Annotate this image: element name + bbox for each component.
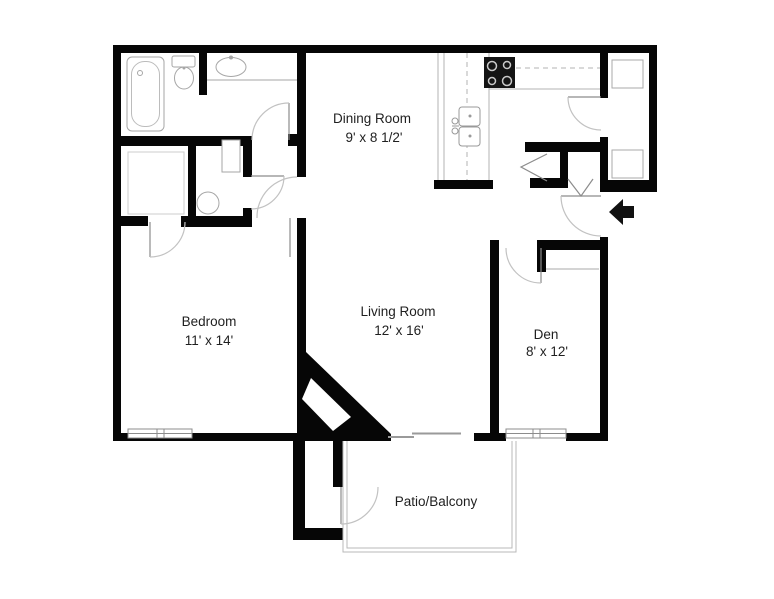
wall-utility-left-lower — [600, 137, 608, 183]
wall-left — [113, 45, 121, 441]
wall-right-upper — [649, 45, 657, 185]
wall-storage-bottom — [293, 528, 343, 540]
room-dims-living: 12' x 16' — [374, 323, 423, 338]
bathtub-icon — [127, 57, 164, 131]
wall-bath-dining — [297, 53, 306, 177]
wall-hallcloset-bottom — [530, 178, 567, 188]
room-label-dining: Dining Room — [333, 111, 411, 126]
floor-plan-page: Dining Room 9' x 8 1/2' Bedroom 11' x 14… — [0, 0, 774, 599]
vanity-sink-icon — [207, 56, 297, 81]
hall-bath-vanity-icon — [222, 140, 240, 172]
entry-door — [561, 196, 601, 236]
wall-bedroom-top-right — [181, 216, 252, 227]
wall-kitchen-cap — [434, 180, 493, 189]
wall-hallbath-left — [188, 143, 196, 218]
bedroom-closet-outline — [128, 152, 184, 214]
wall-bedroom-top-left — [121, 216, 148, 226]
wall-bedroom-living — [297, 218, 306, 354]
wall-hallbath-right-upper — [243, 143, 252, 177]
room-dims-den: 8' x 12' — [526, 344, 568, 359]
bifold-door-icon — [521, 154, 547, 181]
kitchen-double-sink-icon — [452, 107, 480, 146]
bedroom-window — [128, 429, 192, 438]
washer-dryer-shelves-icon — [612, 60, 643, 178]
utility-door — [568, 97, 601, 130]
wall-den-top — [537, 240, 608, 250]
wall-storage-left — [293, 441, 305, 540]
wall-bath-divider-stub — [199, 53, 207, 95]
bedroom-door — [257, 177, 297, 257]
hall-bath-toilet-icon — [197, 192, 219, 214]
den-window — [506, 429, 566, 438]
wall-utility-bottom — [600, 180, 657, 192]
stove-cooktop-icon — [484, 57, 515, 88]
toilet-icon — [172, 56, 195, 89]
wall-den-bottom — [566, 433, 608, 441]
wall-utility-left-upper — [600, 53, 608, 98]
wall-top — [113, 45, 657, 53]
room-label-den: Den — [534, 327, 559, 342]
kitchen — [438, 53, 600, 180]
den-door — [506, 248, 541, 283]
room-label-living: Living Room — [360, 304, 435, 319]
entry-arrow-icon — [609, 199, 634, 225]
wall-hallcloset-top — [525, 142, 600, 152]
wall-bath-se-stub — [288, 134, 306, 146]
wall-right-den — [600, 237, 608, 441]
sliding-glass-door — [388, 434, 461, 438]
room-label-patio: Patio/Balcony — [395, 494, 478, 509]
room-label-bedroom: Bedroom — [182, 314, 237, 329]
bathroom-fixtures — [127, 56, 297, 215]
bifold-door-icon — [568, 179, 593, 196]
fireplace — [297, 352, 391, 441]
room-dims-dining: 9' x 8 1/2' — [346, 130, 403, 145]
wall-den-left — [490, 240, 499, 433]
floor-plan: Dining Room 9' x 8 1/2' Bedroom 11' x 14… — [0, 0, 774, 599]
wall-living-bottom-stub — [474, 433, 506, 441]
wall-storage-right — [333, 441, 343, 487]
room-dims-bedroom: 11' x 14' — [185, 333, 233, 348]
bath-door — [252, 103, 289, 140]
bedroom-closet-door — [150, 222, 185, 257]
